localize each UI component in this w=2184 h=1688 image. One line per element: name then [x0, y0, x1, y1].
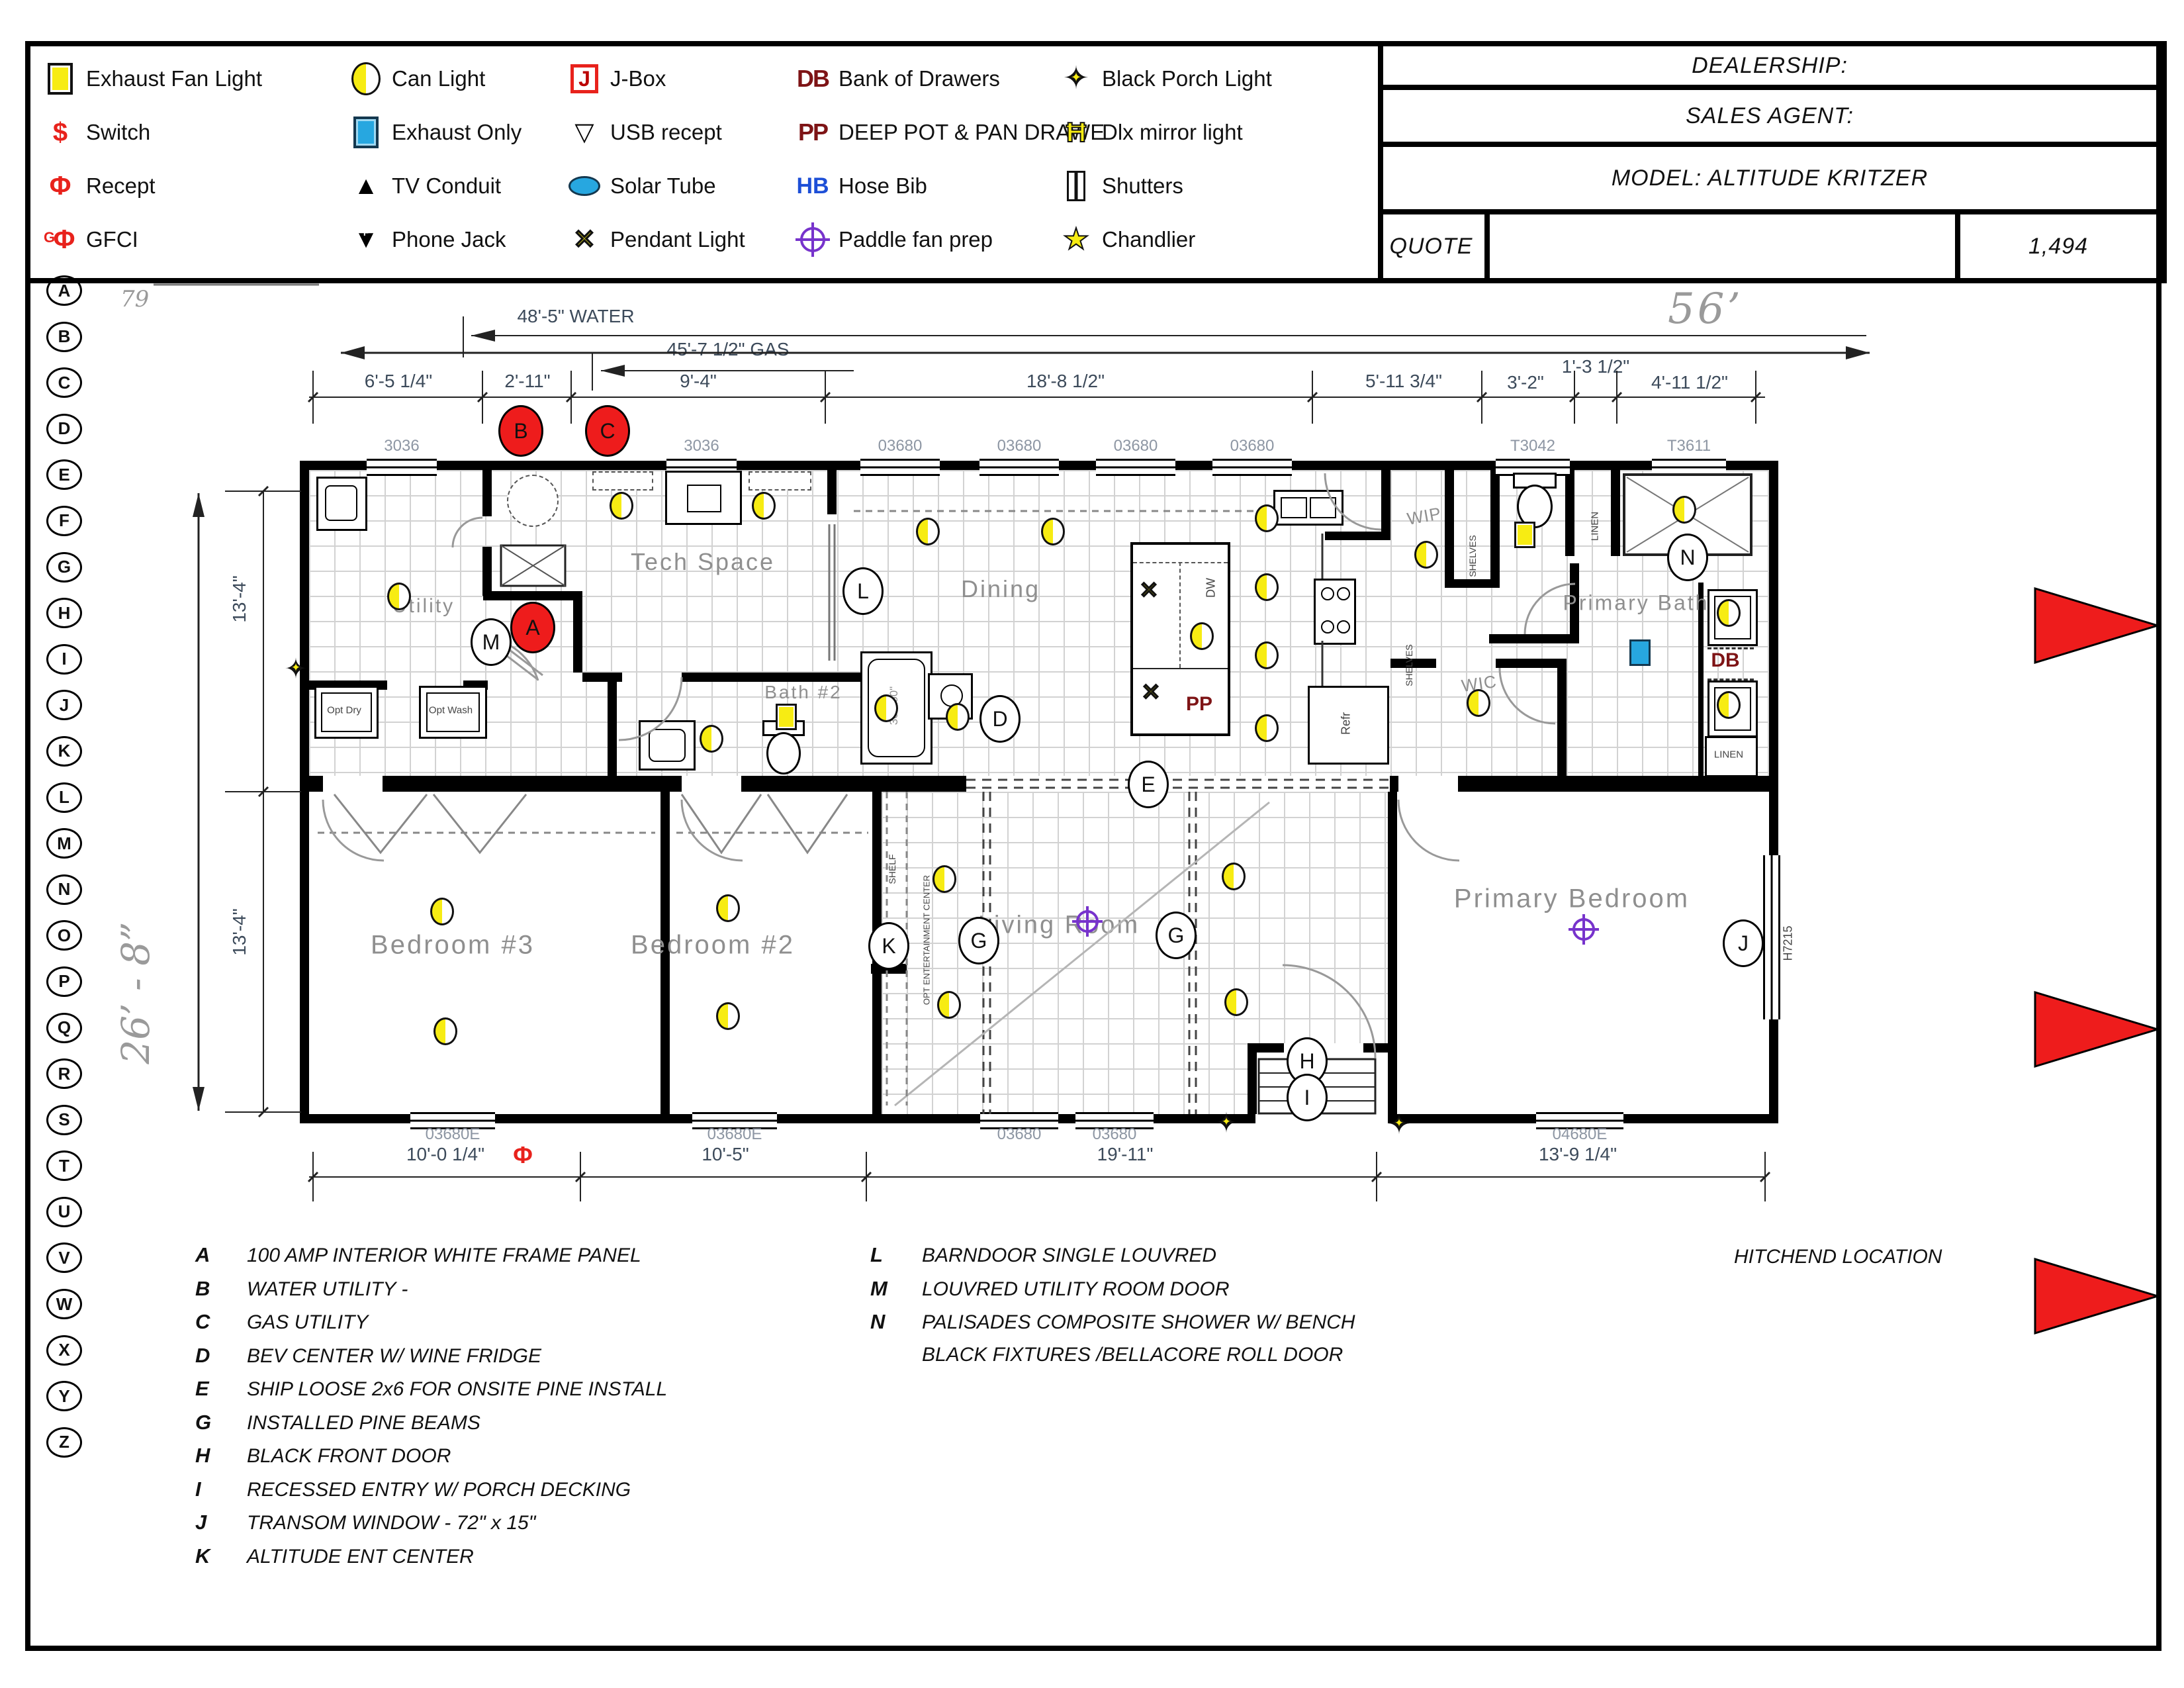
- exhaust-only-icon: [1629, 639, 1651, 666]
- pendant-light-icon: ✕: [1140, 577, 1159, 604]
- can-light-icon: [433, 1017, 457, 1045]
- pendant-light-icon: ✕: [1142, 679, 1161, 706]
- marker-G: G: [1156, 912, 1197, 959]
- can-light-icon: [387, 583, 411, 610]
- can-light-icon: [916, 518, 940, 545]
- marker-E: E: [1128, 761, 1169, 808]
- black-porch-light-icon: ✦✦: [1386, 1111, 1412, 1137]
- can-light-icon: [1672, 496, 1696, 524]
- can-light-icon: [1414, 541, 1438, 569]
- exhaust-fan-light-icon: [1514, 522, 1535, 548]
- exhaust-fan-light-icon: [776, 704, 797, 730]
- marker-A: A: [510, 602, 555, 653]
- black-porch-light-icon: ✦✦: [1213, 1109, 1240, 1136]
- direction-arrow: [2035, 588, 2158, 663]
- can-light-icon: [937, 991, 961, 1019]
- marker-I: I: [1287, 1074, 1328, 1121]
- marker-L: L: [842, 567, 884, 615]
- marker-K: K: [868, 922, 909, 970]
- can-light-icon: [1717, 691, 1741, 719]
- can-light-icon: [1255, 714, 1279, 742]
- marker-B: B: [498, 405, 543, 457]
- gfci-icon: Φ: [513, 1141, 533, 1169]
- can-light-icon: [1467, 689, 1490, 717]
- black-porch-light-icon: ✦✦: [283, 655, 309, 682]
- can-light-icon: [946, 703, 970, 731]
- paddle-fan-prep-icon: [1076, 910, 1099, 933]
- can-light-icon: [1717, 599, 1741, 627]
- paddle-fan-prep-icon: [1572, 918, 1595, 941]
- can-light-icon: [1222, 863, 1246, 890]
- can-light-icon: [1041, 518, 1065, 545]
- marker-G: G: [958, 917, 999, 964]
- plan-linework: [0, 0, 2184, 1688]
- floorplan-sheet: { "titleblock": { "dealership": "DEALERS…: [0, 0, 2184, 1688]
- can-light-icon: [716, 894, 740, 922]
- can-light-icon: [1224, 988, 1248, 1016]
- can-light-icon: [1255, 573, 1279, 601]
- can-light-icon: [610, 492, 633, 520]
- can-light-icon: [933, 865, 956, 893]
- can-light-icon: [1190, 622, 1214, 650]
- can-light-icon: [430, 898, 454, 925]
- can-light-icon: [752, 492, 776, 520]
- marker-J: J: [1723, 919, 1764, 967]
- direction-arrow: [2035, 992, 2158, 1066]
- marker-C: C: [585, 405, 630, 457]
- marker-M: M: [471, 618, 512, 666]
- can-light-icon: [716, 1002, 740, 1030]
- marker-N: N: [1667, 534, 1708, 581]
- marker-D: D: [979, 695, 1021, 743]
- direction-arrow: [2035, 1259, 2158, 1333]
- can-light-icon: [700, 725, 723, 753]
- can-light-icon: [1255, 641, 1279, 669]
- can-light-icon: [874, 694, 898, 722]
- can-light-icon: [1255, 504, 1279, 532]
